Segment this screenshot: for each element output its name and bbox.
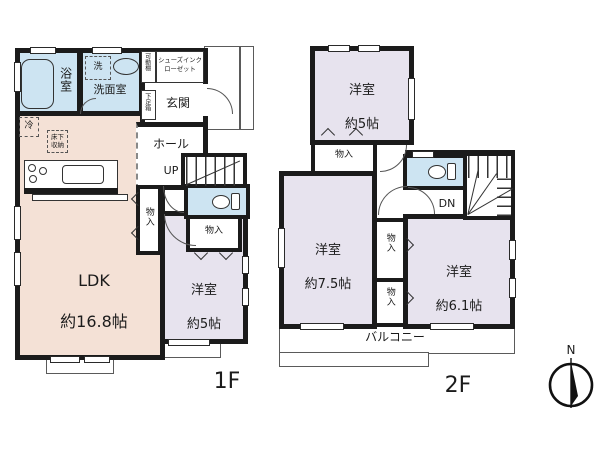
- closet-1f-side-label: 物入: [142, 207, 154, 227]
- toilet-2f-tank: [447, 163, 456, 180]
- room5-1f-name: 洋室: [162, 283, 246, 300]
- window-ldk-left-1: [14, 206, 21, 240]
- closet-1f-small-label: 物入: [190, 226, 238, 238]
- fridge-label: 冷: [24, 122, 33, 132]
- toilet-1f-tank: [231, 193, 240, 210]
- room61-2f-name: 洋室: [403, 265, 515, 282]
- washroom-label: 洗面室: [80, 83, 140, 97]
- bathtub: [21, 59, 54, 109]
- toilet-1f-door-arc: [163, 186, 184, 213]
- stove-burner-2: [39, 167, 47, 175]
- room75-2f-name: 洋室: [279, 243, 377, 260]
- washer-box: 洗: [85, 56, 111, 80]
- fridge-box: 冷: [19, 117, 39, 137]
- up-label: UP: [158, 164, 184, 178]
- dn-label: DN: [433, 197, 461, 211]
- kitchen-counter-face: [32, 194, 128, 201]
- ldk-name: LDK: [38, 271, 150, 292]
- window-ldk-bottom-1: [50, 356, 80, 363]
- room5-2f-size: 約5帖: [310, 117, 414, 134]
- balcony-step: [279, 352, 429, 367]
- porch-divider-line: [239, 46, 241, 130]
- window-ldk-bottom-2: [84, 356, 110, 363]
- room61-2f-label: 洋室 約6.1帖: [403, 248, 515, 332]
- room5-2f-label: 洋室 約5帖: [310, 66, 414, 150]
- movable-shelf-label: 可動棚: [143, 53, 151, 71]
- bath-label: 浴室: [57, 67, 73, 93]
- closet-2f-top-label: 物入: [313, 150, 375, 162]
- window-bath-top: [30, 47, 56, 54]
- stove-burner-3: [29, 175, 37, 183]
- room75-2f-door-arc: [378, 186, 407, 215]
- room75-2f-size: 約7.5帖: [279, 277, 377, 294]
- floor-label-2f: 2F: [436, 372, 480, 401]
- underfloor-storage-label: 床下収納: [49, 134, 66, 148]
- room61-2f-door-arc: [408, 187, 435, 214]
- window-bath-left: [14, 62, 21, 92]
- stairs-2f-treads-top: [468, 156, 511, 178]
- toilet-1f-bowl: [212, 195, 230, 209]
- toilet-2f-icon: [428, 163, 456, 180]
- shoe-closet-label: シューズインクローゼット: [158, 57, 202, 75]
- window-2f-toilet-top: [412, 151, 434, 158]
- ldk-size: 約16.8帖: [38, 312, 150, 333]
- room61-2f-size: 約6.1帖: [403, 299, 515, 316]
- washer-label: 洗: [93, 63, 102, 73]
- hall-label: ホール: [140, 137, 202, 153]
- window-2f-room75-bottom: [300, 323, 344, 330]
- stove-burner-1: [28, 164, 36, 172]
- floor-plan-canvas: 洗 冷 床下収納 可動棚 シューズインクローゼット 下足箱 浴室 洗面室 玄: [0, 0, 600, 450]
- room5-1f-label: 洋室 約5帖: [162, 266, 246, 350]
- window-washroom-top: [92, 47, 122, 54]
- closet-2f-b-label: 物入: [383, 287, 395, 307]
- room5-2f-name: 洋室: [310, 83, 414, 100]
- kitchen-sink: [62, 165, 104, 184]
- room5-1f-size: 約5帖: [162, 317, 246, 334]
- ldk-label: LDK 約16.8帖: [38, 250, 150, 354]
- room75-2f-label: 洋室 約7.5帖: [279, 226, 377, 310]
- toilet-2f-bowl: [428, 165, 446, 179]
- shoe-box-label: 下足箱: [143, 93, 151, 111]
- window-ldk-left-2: [14, 252, 21, 286]
- underfloor-storage-box: 床下収納: [47, 130, 68, 153]
- entrance-label: 玄関: [155, 96, 201, 112]
- balcony-label: バルコニー: [330, 330, 460, 346]
- window-2f-room5-top-2: [358, 45, 380, 52]
- floor-label-1f: 1F: [205, 368, 249, 397]
- washbasin-sink: [113, 58, 139, 75]
- compass-icon: [543, 352, 599, 414]
- window-2f-room5-top-1: [328, 45, 350, 52]
- closet-2f-a-label: 物入: [383, 233, 395, 253]
- toilet-1f-icon: [212, 193, 240, 210]
